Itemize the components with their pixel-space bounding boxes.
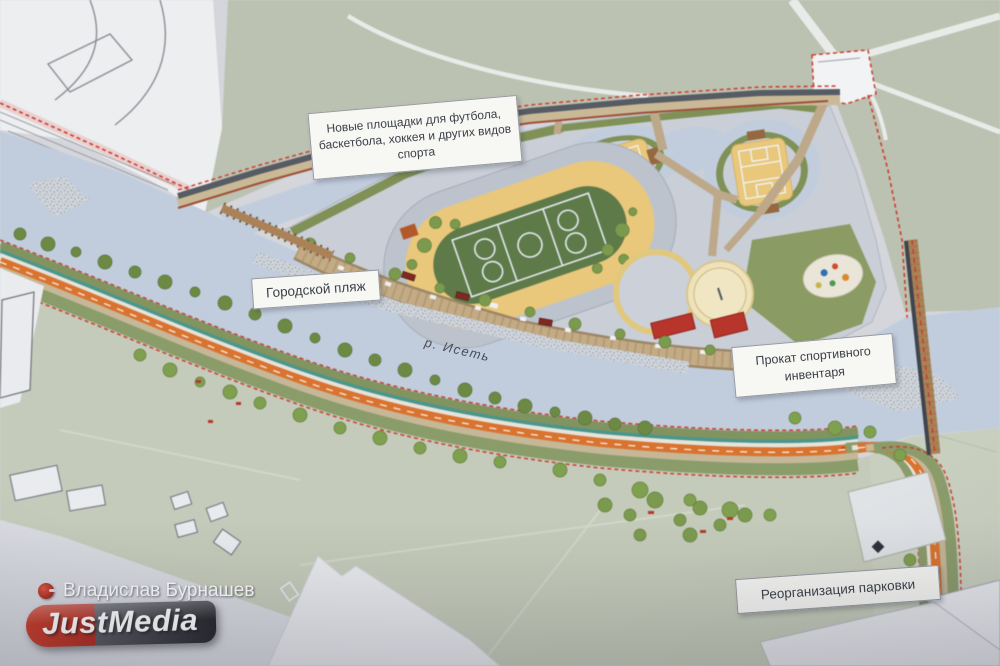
decor-diamond-icon xyxy=(280,580,300,601)
watermark: Владислав Бурнашев Just Media xyxy=(26,580,298,645)
map-photo: Новые площадки для футбола, баскетбола, … xyxy=(0,0,1000,666)
watermark-author: Владислав Бурнашев xyxy=(63,580,254,602)
justmedia-logo-media: Media xyxy=(107,601,198,641)
justmedia-dot-icon xyxy=(38,583,54,599)
justmedia-logo: Just Media xyxy=(25,601,216,648)
justmedia-logo-just: Just xyxy=(41,603,108,643)
watermark-author-row: Владислав Бурнашев xyxy=(38,580,298,602)
